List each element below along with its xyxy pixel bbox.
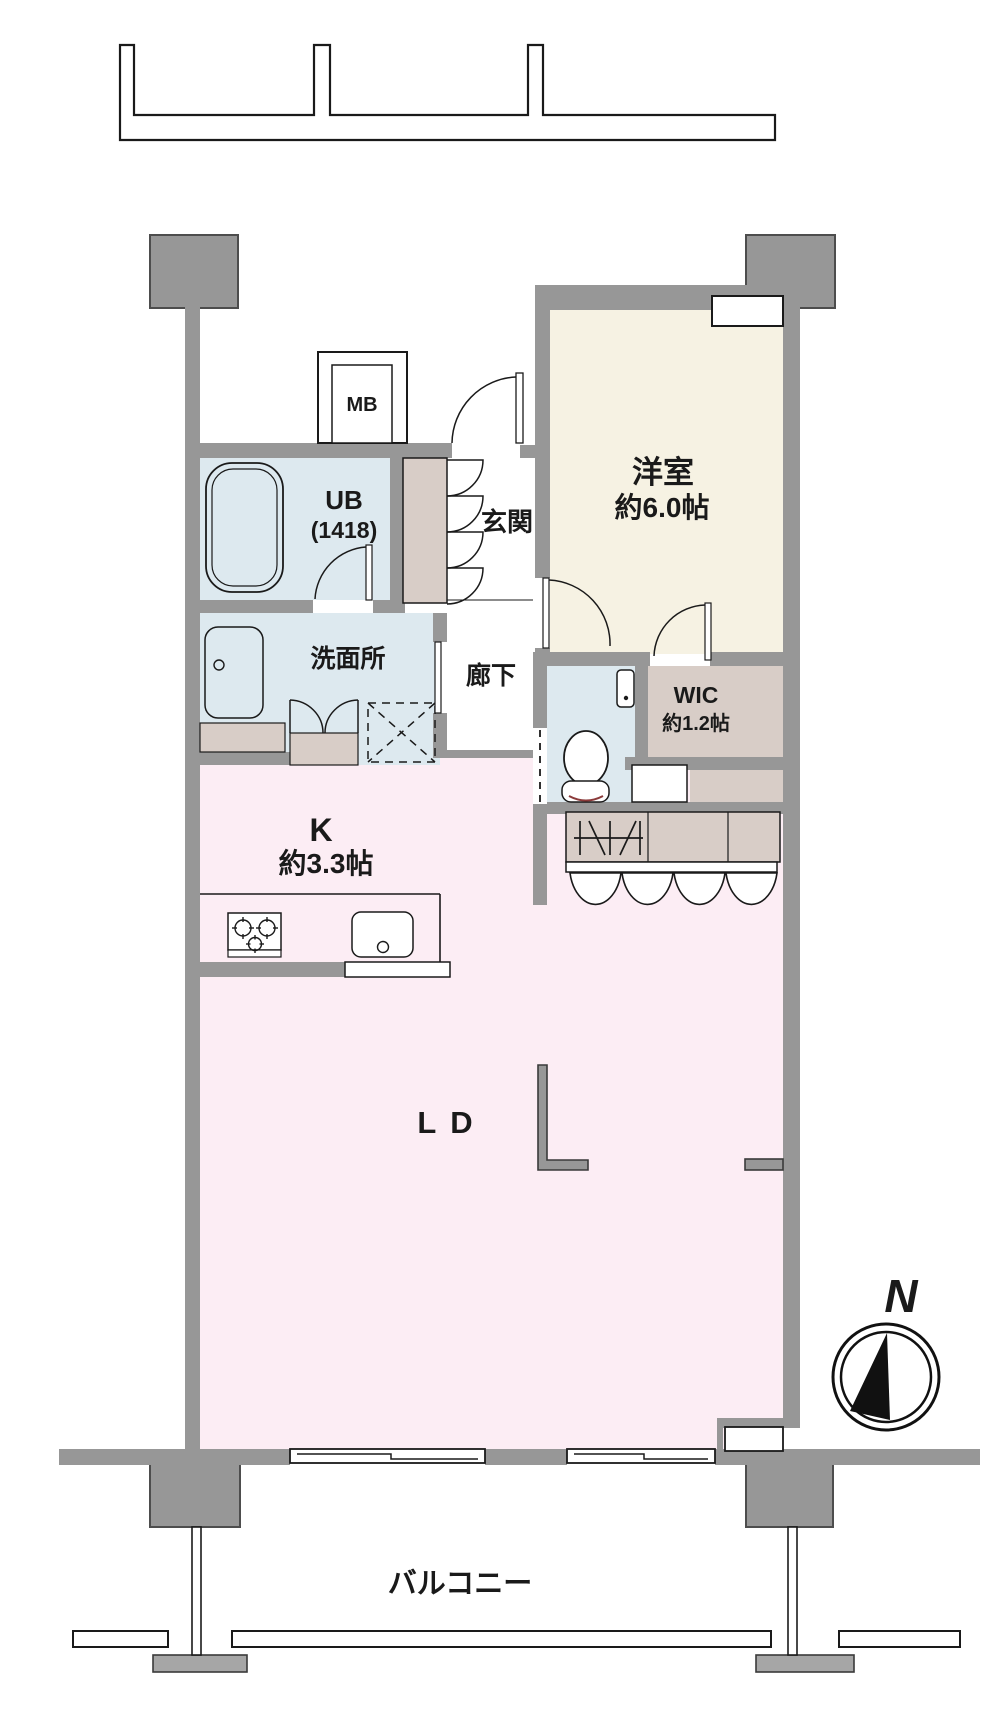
label-ub-size: (1418) [311, 517, 377, 543]
balcony-partition-blocks [153, 1655, 854, 1672]
shoe-cabinet-door-arcs [447, 460, 483, 604]
closet-track [566, 862, 777, 872]
ub-door-leaf [366, 545, 372, 600]
sink-icon [352, 912, 413, 957]
western-door-leaf [543, 578, 549, 648]
counter-base-cabinet [345, 962, 450, 977]
wall-washroom-right-upper [433, 613, 447, 642]
closet-body [566, 812, 780, 862]
washroom-counter-left [200, 723, 285, 752]
compass-north-label: N [884, 1270, 918, 1322]
label-living-dining: LD [417, 1105, 486, 1140]
sliding-window-left [290, 1449, 485, 1463]
label-wic-size: 約1.2帖 [662, 711, 730, 735]
storage-box [632, 765, 687, 802]
sliding-window-right [567, 1449, 715, 1463]
washroom-sliding-door [435, 642, 441, 713]
front-door [452, 373, 523, 443]
label-balcony: バルコニー [388, 1568, 532, 1600]
label-hallway: 廊下 [466, 661, 516, 690]
western-room-window-notch [712, 296, 783, 326]
shoe-cabinet [403, 458, 447, 603]
toilet-door-dashed [533, 728, 547, 804]
wall-washroom-right-lower [433, 713, 447, 752]
corridor-comb-shape [120, 45, 775, 140]
washroom-sliding-door-leaf [435, 642, 441, 713]
toilet-tank-button [624, 696, 628, 700]
label-mb: MB [346, 394, 377, 416]
label-wic: WIC [674, 682, 719, 708]
label-kitchen: K [309, 812, 332, 848]
label-western-room-size: 約6.0帖 [615, 491, 710, 523]
wall-notch-left [717, 1428, 723, 1450]
corner-window [725, 1427, 783, 1451]
label-western-room: 洋室 [632, 455, 694, 490]
storage-area [632, 765, 687, 802]
stove-icon [228, 913, 281, 957]
label-kitchen-size: 約3.3帖 [279, 847, 374, 879]
wall-left-outer [185, 300, 200, 1465]
washroom-threshold [290, 733, 358, 765]
front-door-leaf [516, 373, 523, 443]
toilet-base [562, 781, 609, 802]
wall-ub-bottom-left [185, 600, 313, 613]
label-entrance: 玄関 [481, 507, 533, 537]
compass: N [833, 1270, 939, 1430]
label-washroom: 洗面所 [310, 645, 385, 673]
wall-ub-bottom-right [373, 600, 405, 613]
ld-right-stub [745, 1159, 783, 1170]
wic-door-leaf [705, 603, 711, 660]
wall-kitchen-half [185, 962, 345, 977]
hanging-wall-corridor-ld [433, 750, 547, 758]
entrance-area [403, 373, 533, 604]
floor-plan: N MB UB (1418) 玄関 洋室 約6.0帖 洗面所 廊下 WIC 約1… [0, 0, 999, 1710]
toilet-bowl [564, 731, 608, 785]
pillar-top-left [150, 235, 238, 308]
wall-ub-right [390, 457, 403, 600]
wall-wic-top-right [710, 652, 783, 666]
wall-bottom-center [485, 1449, 567, 1465]
label-ub: UB [325, 485, 363, 515]
common-corridor-outline [120, 45, 775, 140]
wic-floor [648, 666, 783, 757]
wall-washroom-bottom [185, 752, 290, 765]
toilet-tank [617, 670, 634, 707]
balcony-railing [73, 1631, 960, 1647]
wall-right-outer [783, 295, 800, 1422]
wall-toilet-top [533, 652, 650, 666]
pillar-bottom-right [746, 1455, 833, 1527]
wall-western-left-upper [535, 295, 550, 578]
front-door-arc [452, 377, 516, 443]
pillar-bottom-left [150, 1455, 240, 1527]
wall-bottom-left-wing [59, 1449, 290, 1465]
wall-top-left [185, 443, 452, 458]
